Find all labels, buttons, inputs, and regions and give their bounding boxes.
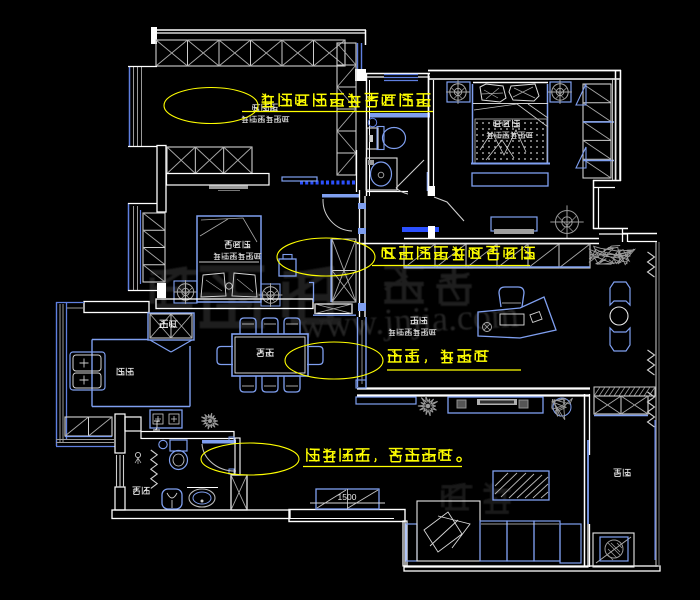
- svg-text:1500: 1500: [338, 492, 357, 502]
